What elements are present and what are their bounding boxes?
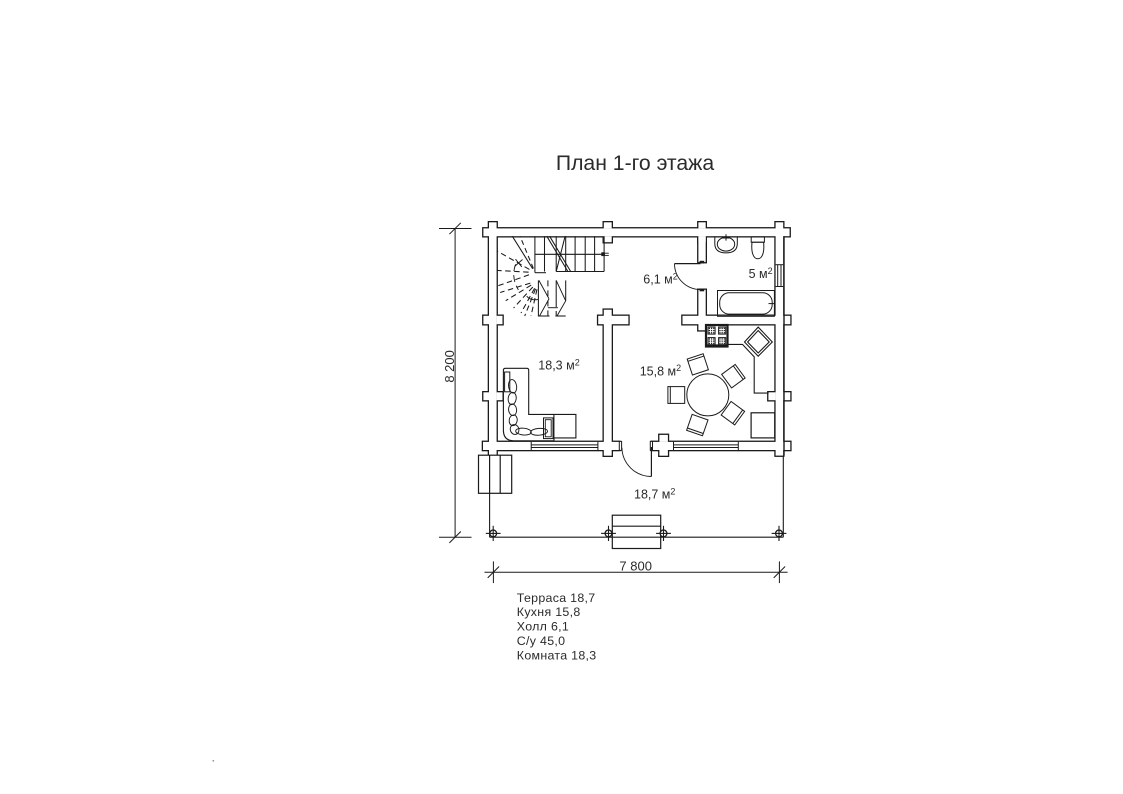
svg-text:План 1-го этажа: План 1-го этажа bbox=[556, 152, 715, 175]
svg-text:Терраса 18,7: Терраса 18,7 bbox=[517, 591, 596, 605]
svg-text:С/у 45,0: С/у 45,0 bbox=[517, 634, 566, 648]
svg-text:Кухня 15,8: Кухня 15,8 bbox=[517, 605, 581, 619]
svg-text:6,1 м2: 6,1 м2 bbox=[643, 271, 677, 286]
svg-text:8 200: 8 200 bbox=[442, 350, 457, 383]
svg-text:15,8 м2: 15,8 м2 bbox=[640, 363, 681, 378]
svg-text:7 800: 7 800 bbox=[619, 559, 652, 574]
svg-text:Холл 6,1: Холл 6,1 bbox=[517, 620, 569, 634]
svg-text:18,7 м2: 18,7 м2 bbox=[634, 486, 675, 501]
svg-text:Комната 18,3: Комната 18,3 bbox=[517, 648, 597, 662]
svg-text:18,3 м2: 18,3 м2 bbox=[538, 357, 579, 372]
